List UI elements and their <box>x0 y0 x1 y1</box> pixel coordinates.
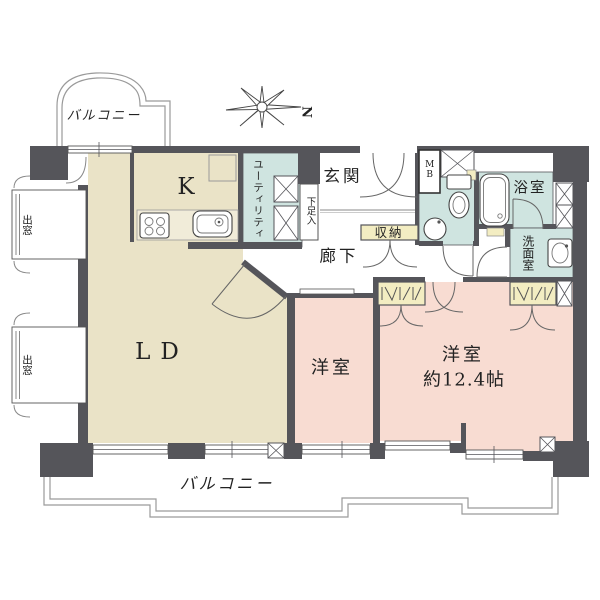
living-dining-label: LD <box>135 339 189 365</box>
bedroom-large-size-label: 約12.4帖 <box>423 371 505 392</box>
shaft-icon <box>268 443 284 458</box>
entrance-door-arc <box>360 153 404 197</box>
floorplan-drawing: N <box>0 0 600 600</box>
wall-nook <box>66 153 88 185</box>
washbasin-icon <box>548 239 572 267</box>
living-dining-room <box>88 153 243 443</box>
entrance-door-arc <box>373 153 417 197</box>
kitchen-label: K <box>177 174 194 200</box>
closet-b <box>510 282 556 305</box>
shaft-icon <box>540 437 555 452</box>
floorplan-canvas: N バルコニー K ユーティリティ 玄関 下足入 MB 収納 廊下 浴室 洗面室… <box>0 0 600 600</box>
washroom-door-arc <box>477 247 507 277</box>
bay-window-upper-label: 出窓 <box>21 215 33 236</box>
balcony-bottom-label: バルコニー <box>180 475 275 493</box>
bedroom-large-room <box>380 282 573 451</box>
shoe-cabinet-label: 下足入 <box>304 197 315 226</box>
shaft-icon <box>556 205 573 228</box>
kitchen-sink-icon <box>193 211 232 237</box>
compass-north-label: N <box>299 106 314 118</box>
meter-box-label: MB <box>424 160 434 180</box>
bedroom-large-label: 洋室 <box>442 346 484 367</box>
storage-door-arcs <box>363 240 417 267</box>
entrance-label: 玄関 <box>324 168 363 187</box>
bedroom-small-sliding-door <box>300 289 354 294</box>
stove-icon <box>140 213 169 238</box>
washroom-label: 洗面室 <box>520 235 534 271</box>
bay-window-lower-label: 出窓 <box>21 355 33 376</box>
counter-pad <box>487 228 504 236</box>
shaft-icon <box>556 183 573 205</box>
bedroom-small-label: 洋室 <box>311 359 353 380</box>
utility-label: ユーティリティ <box>252 159 264 240</box>
storage-label: 収納 <box>374 225 403 239</box>
hallway-label: 廊下 <box>320 248 359 267</box>
balcony-top-label: バルコニー <box>67 110 142 125</box>
shaft-icon <box>557 281 572 306</box>
compass-icon: N <box>226 86 314 128</box>
bathtub-icon <box>480 174 509 226</box>
toilet-door-arc <box>443 246 473 276</box>
hand-basin-icon <box>424 218 446 240</box>
balcony-bottom-outline <box>44 477 558 517</box>
bathroom-label: 浴室 <box>514 181 547 198</box>
shaft-icon <box>274 206 298 240</box>
shaft-icon <box>274 176 298 202</box>
